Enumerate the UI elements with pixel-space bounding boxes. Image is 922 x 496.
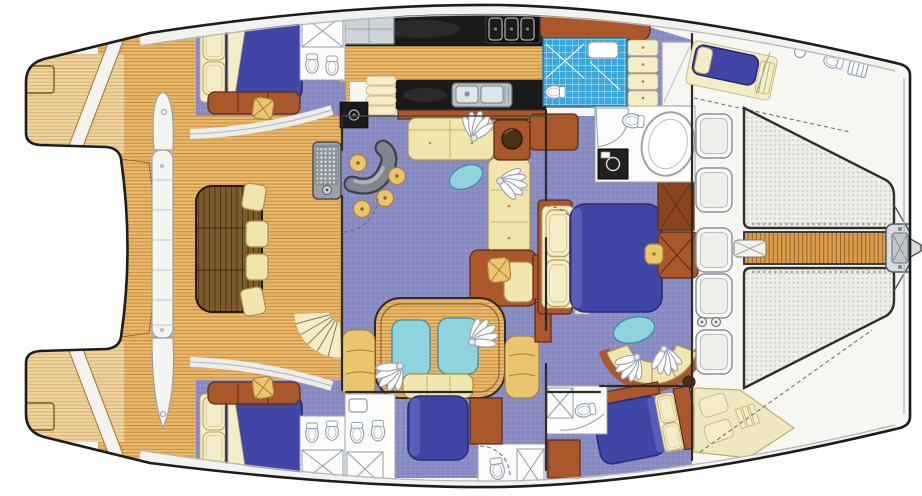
- wardrobe-block: [658, 180, 694, 230]
- rattan-stool: [487, 257, 511, 283]
- starboard-deck-box: [16, 403, 54, 430]
- deck-hatch: [696, 274, 732, 318]
- toilet-icon: [326, 56, 339, 75]
- curved-side-cabinet-right: [505, 336, 539, 398]
- toilet-icon: [306, 54, 319, 73]
- sheet-highlight: [410, 398, 420, 456]
- aft-center-head: [345, 394, 395, 488]
- toilet-icon: [371, 421, 384, 441]
- bar-stool: [350, 155, 367, 172]
- deck-hatch: [696, 228, 732, 272]
- planter-side-table: [494, 120, 530, 160]
- basin: [588, 42, 618, 58]
- bar-stool: [354, 201, 371, 218]
- port-aft-cabin: [200, 21, 302, 120]
- bar-stool: [377, 190, 394, 207]
- aft-boarding-strip: [121, 159, 155, 337]
- vanity-stool: [252, 97, 275, 121]
- toilet-icon: [306, 423, 319, 442]
- screenshot-canvas: Sailing catamaran yacht — overhead deck …: [0, 0, 922, 496]
- curved-side-cabinet-left: [342, 330, 375, 398]
- double-sink: [452, 83, 512, 107]
- sideboard: [530, 114, 578, 150]
- sheet-highlight: [572, 208, 582, 308]
- toilet-icon: [546, 86, 565, 99]
- cooktop: [486, 16, 540, 43]
- vanity-stool: [252, 376, 275, 400]
- cockpit-bench: [152, 92, 174, 428]
- pillow: [203, 62, 225, 95]
- pillow: [546, 210, 570, 257]
- owner-bathroom: [595, 106, 701, 182]
- console-bench: [403, 374, 473, 398]
- cockpit-sink-console: [313, 142, 341, 199]
- deck-hatch: [696, 330, 732, 374]
- pillow: [546, 260, 570, 307]
- hull-cabinet: [548, 440, 580, 478]
- yacht-floorplan: Sailing catamaran yacht — overhead deck …: [0, 0, 922, 496]
- bar-end-unit: [340, 102, 368, 128]
- basin: [349, 399, 367, 412]
- port-deck-box: [16, 66, 54, 93]
- toilet-icon: [326, 421, 339, 440]
- deck-hatch: [696, 114, 732, 158]
- hull-cabinet: [470, 398, 502, 444]
- toilet-icon: [350, 423, 363, 443]
- deck-hatch: [696, 168, 732, 212]
- dark-vanity-sink: [598, 149, 628, 179]
- bar-stool: [389, 168, 406, 185]
- hull-interior: [0, 0, 922, 496]
- starboard-aft-cabin: [200, 376, 302, 475]
